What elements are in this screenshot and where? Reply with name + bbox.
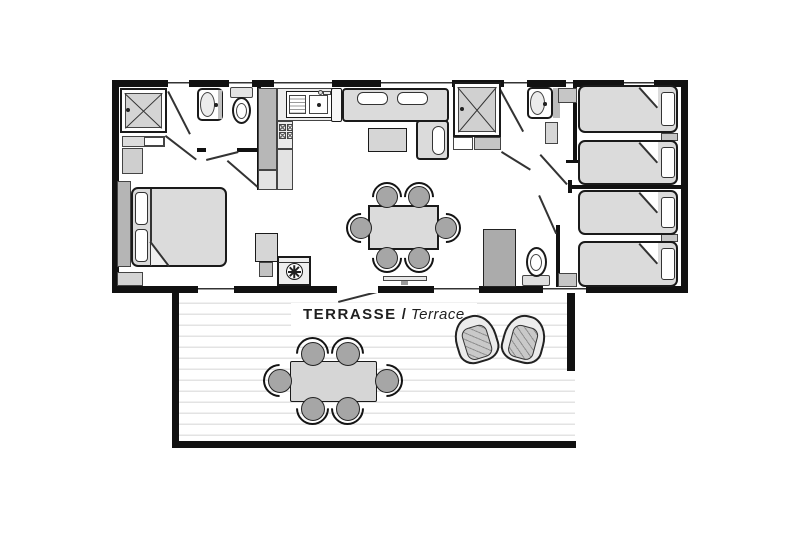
terrace-wall-right [567,293,575,371]
wall-bedroom-divider [570,185,681,189]
window-icon [433,286,480,293]
sink-drain [317,103,321,107]
pillow [661,248,675,280]
stove-burner [287,124,294,131]
sofa-cushion [357,92,388,105]
terrace-label: TERRASSE/Terrace [291,303,477,326]
front-door-opening [337,286,378,293]
house-wall-right [681,80,688,293]
terrace-wall-left [172,293,179,448]
terrace-label-fr: TERRASSE [303,306,397,323]
cabinet-stub [259,262,273,277]
pillow [661,92,675,126]
sink-drainer [289,95,306,114]
sink-tap-spout [323,91,331,95]
kitchen-counter [258,88,277,170]
washbasin-counter [218,90,222,119]
window-icon [167,80,190,87]
kitchen-counter-low [258,170,277,190]
wall-bathroom1 [237,148,258,152]
door-swing-icon [501,151,531,170]
pillow [661,197,675,228]
fridge-icon [331,88,342,122]
shower-head [126,108,130,112]
bathroom-cabinet [122,148,143,174]
door-swing-icon [500,89,524,132]
sideboard-leg [401,281,408,285]
washbasin-tap [543,102,547,106]
pillow [135,229,148,262]
toilet-bowl-inner [236,103,247,119]
terrace-wall-bottom [172,441,576,448]
window-icon [197,286,235,293]
bedroom-cabinet [117,272,143,286]
shower-step [453,137,473,150]
terrace-label-separator: / [402,306,406,323]
door-swing-icon [539,195,558,234]
dining-table-icon [368,205,439,250]
bed-headboard [117,181,131,267]
sofa-cushion [397,92,428,105]
wall-divider-doorstop [568,180,572,193]
stove-burner [279,132,286,139]
toilet-bowl-inner [530,254,542,271]
door-swing-icon [540,154,568,185]
window-icon [503,80,528,87]
door-swing-icon [206,151,238,160]
bathroom-shelf [144,137,164,146]
terrace-label-en: Terrace [411,306,465,323]
kitchen-counter-low [277,149,293,190]
floor-plan: TERRASSE/Terrace [0,0,800,533]
window-icon [228,80,253,87]
shower-step [474,137,501,150]
window-icon [380,80,453,87]
wall-bathroom1 [197,148,206,152]
sofa-cushion [432,126,445,155]
washbasin-bowl [200,92,215,117]
washbasin-tap [214,103,218,107]
window-icon [542,286,587,293]
door-swing-icon [168,91,191,134]
tall-cabinet [255,233,278,262]
stove-burner [287,132,294,139]
shower-head [460,107,464,111]
armchair-seat [460,323,495,362]
coffee-table-icon [368,128,407,152]
bathroom-cabinet [545,122,558,144]
pillow [135,192,148,225]
armchair-seat [506,323,540,362]
wardrobe-icon [483,229,516,287]
door-swing-icon [165,135,197,160]
nightstand [558,273,577,287]
nightstand [558,88,577,103]
stove-burner [279,124,286,131]
pillow [661,147,675,178]
door-swing-icon [227,160,258,187]
window-icon [273,80,333,87]
